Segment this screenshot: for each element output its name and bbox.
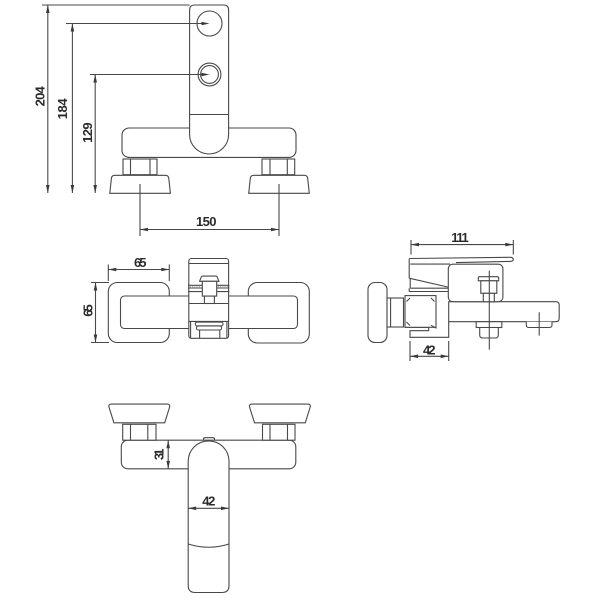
svg-text:150: 150 <box>196 214 217 229</box>
svg-text:42: 42 <box>423 343 436 358</box>
svg-text:111: 111 <box>451 230 469 245</box>
svg-text:184: 184 <box>55 98 70 120</box>
svg-text:42: 42 <box>202 493 215 508</box>
svg-text:204: 204 <box>32 86 47 107</box>
svg-text:65: 65 <box>134 255 147 270</box>
svg-text:31: 31 <box>151 449 166 461</box>
svg-text:129: 129 <box>80 122 95 143</box>
svg-text:65: 65 <box>81 304 96 317</box>
